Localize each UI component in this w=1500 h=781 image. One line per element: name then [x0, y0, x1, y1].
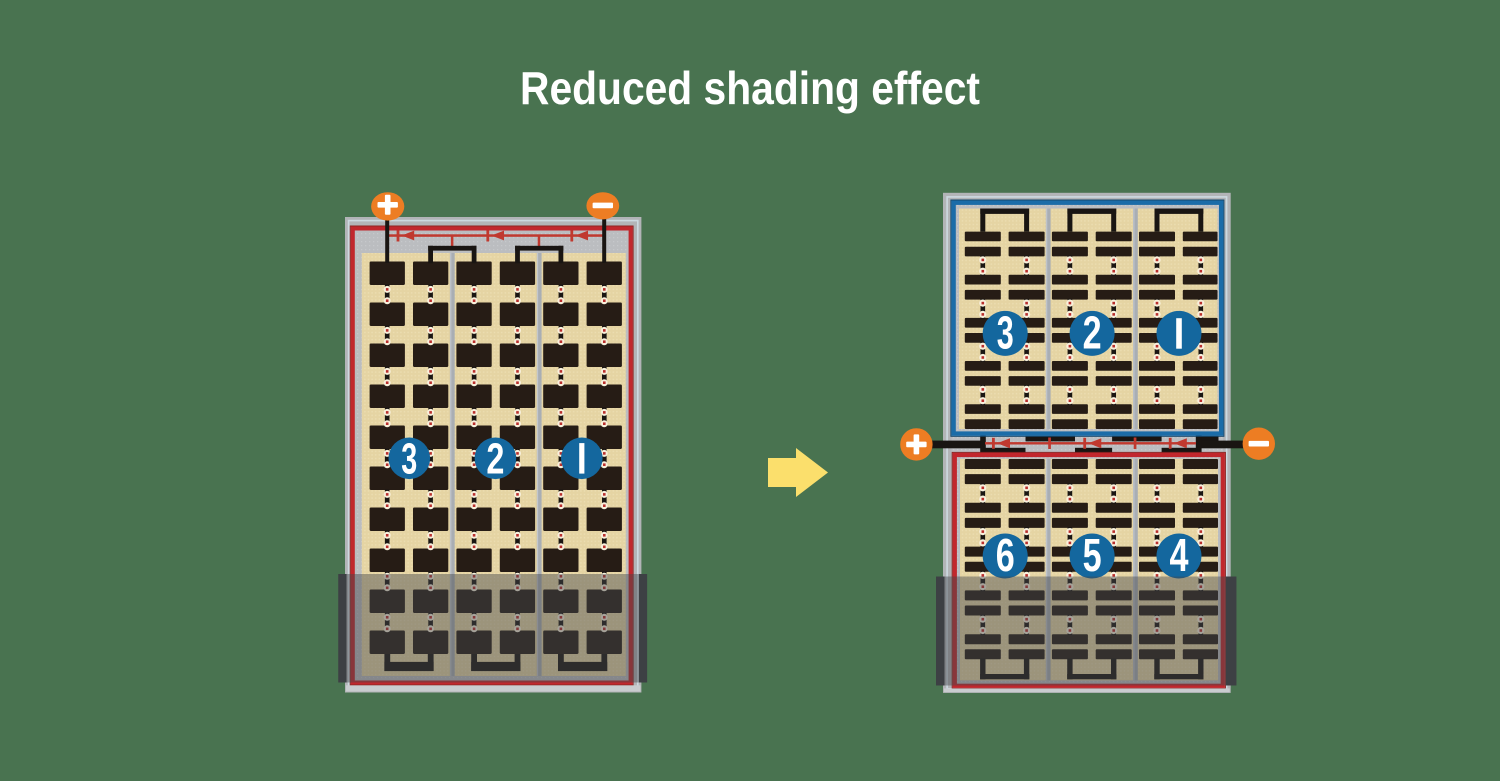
svg-text:6: 6: [996, 529, 1015, 581]
svg-text:2: 2: [1083, 307, 1102, 359]
svg-text:3: 3: [401, 435, 417, 484]
svg-text:Reduced shading effect: Reduced shading effect: [520, 62, 980, 114]
svg-text:5: 5: [1083, 529, 1102, 581]
svg-text:4: 4: [1170, 529, 1189, 581]
svg-text:3: 3: [997, 307, 1014, 359]
svg-text:2: 2: [486, 435, 504, 484]
